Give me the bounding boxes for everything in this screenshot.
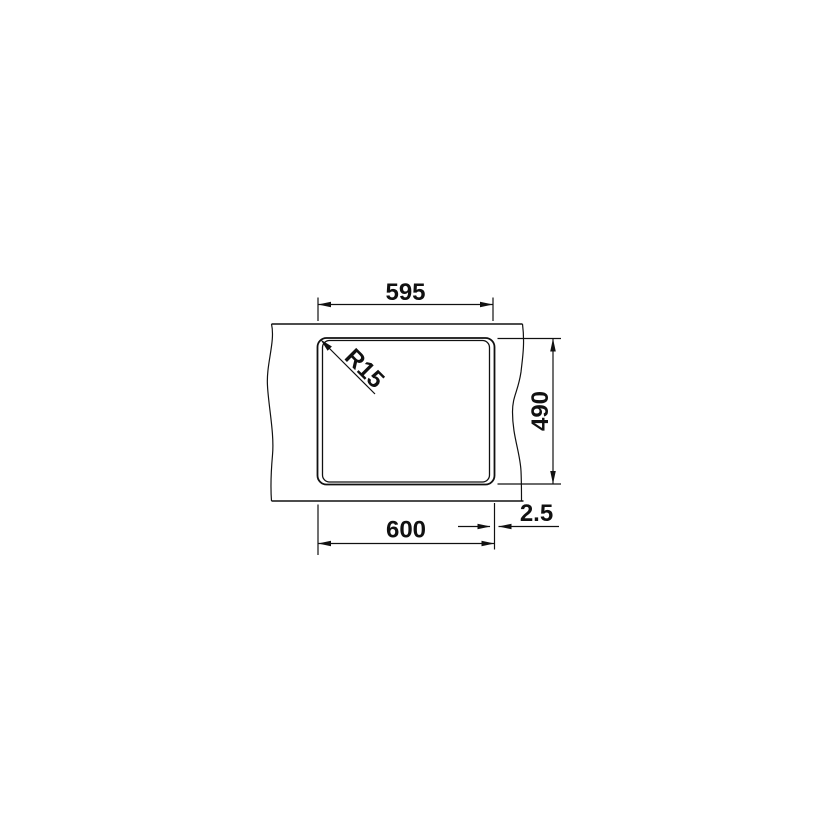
radius-callout: R15: [321, 340, 390, 395]
dimension-label-600: 600: [386, 517, 426, 544]
arrowhead-left: [318, 302, 331, 308]
arrowhead-pointing-right: [478, 524, 491, 530]
break-line-right: [513, 324, 524, 501]
arrowhead-pointing-left: [499, 524, 512, 530]
dimension-overall-width: 600: [318, 503, 495, 555]
arrowhead-right: [482, 541, 495, 547]
arrowhead-right: [480, 302, 493, 308]
dimension-depth: 490: [498, 339, 562, 485]
technical-drawing-canvas: 595 600 490 2.5: [0, 0, 830, 830]
dimension-label-2-5: 2.5: [520, 500, 553, 527]
dimension-top-width: 595: [318, 279, 493, 321]
break-line-left: [267, 324, 273, 501]
countertop: [267, 324, 523, 501]
arrowhead-bottom: [550, 471, 556, 484]
arrowhead-top: [550, 339, 556, 352]
dimension-label-490: 490: [527, 391, 554, 431]
dimension-edge-offset: 2.5: [458, 500, 559, 529]
drawing-page: 595 600 490 2.5: [0, 0, 830, 830]
arrowhead-left: [318, 541, 331, 547]
dimension-label-595: 595: [385, 279, 425, 306]
radius-label-r15: R15: [339, 344, 389, 394]
